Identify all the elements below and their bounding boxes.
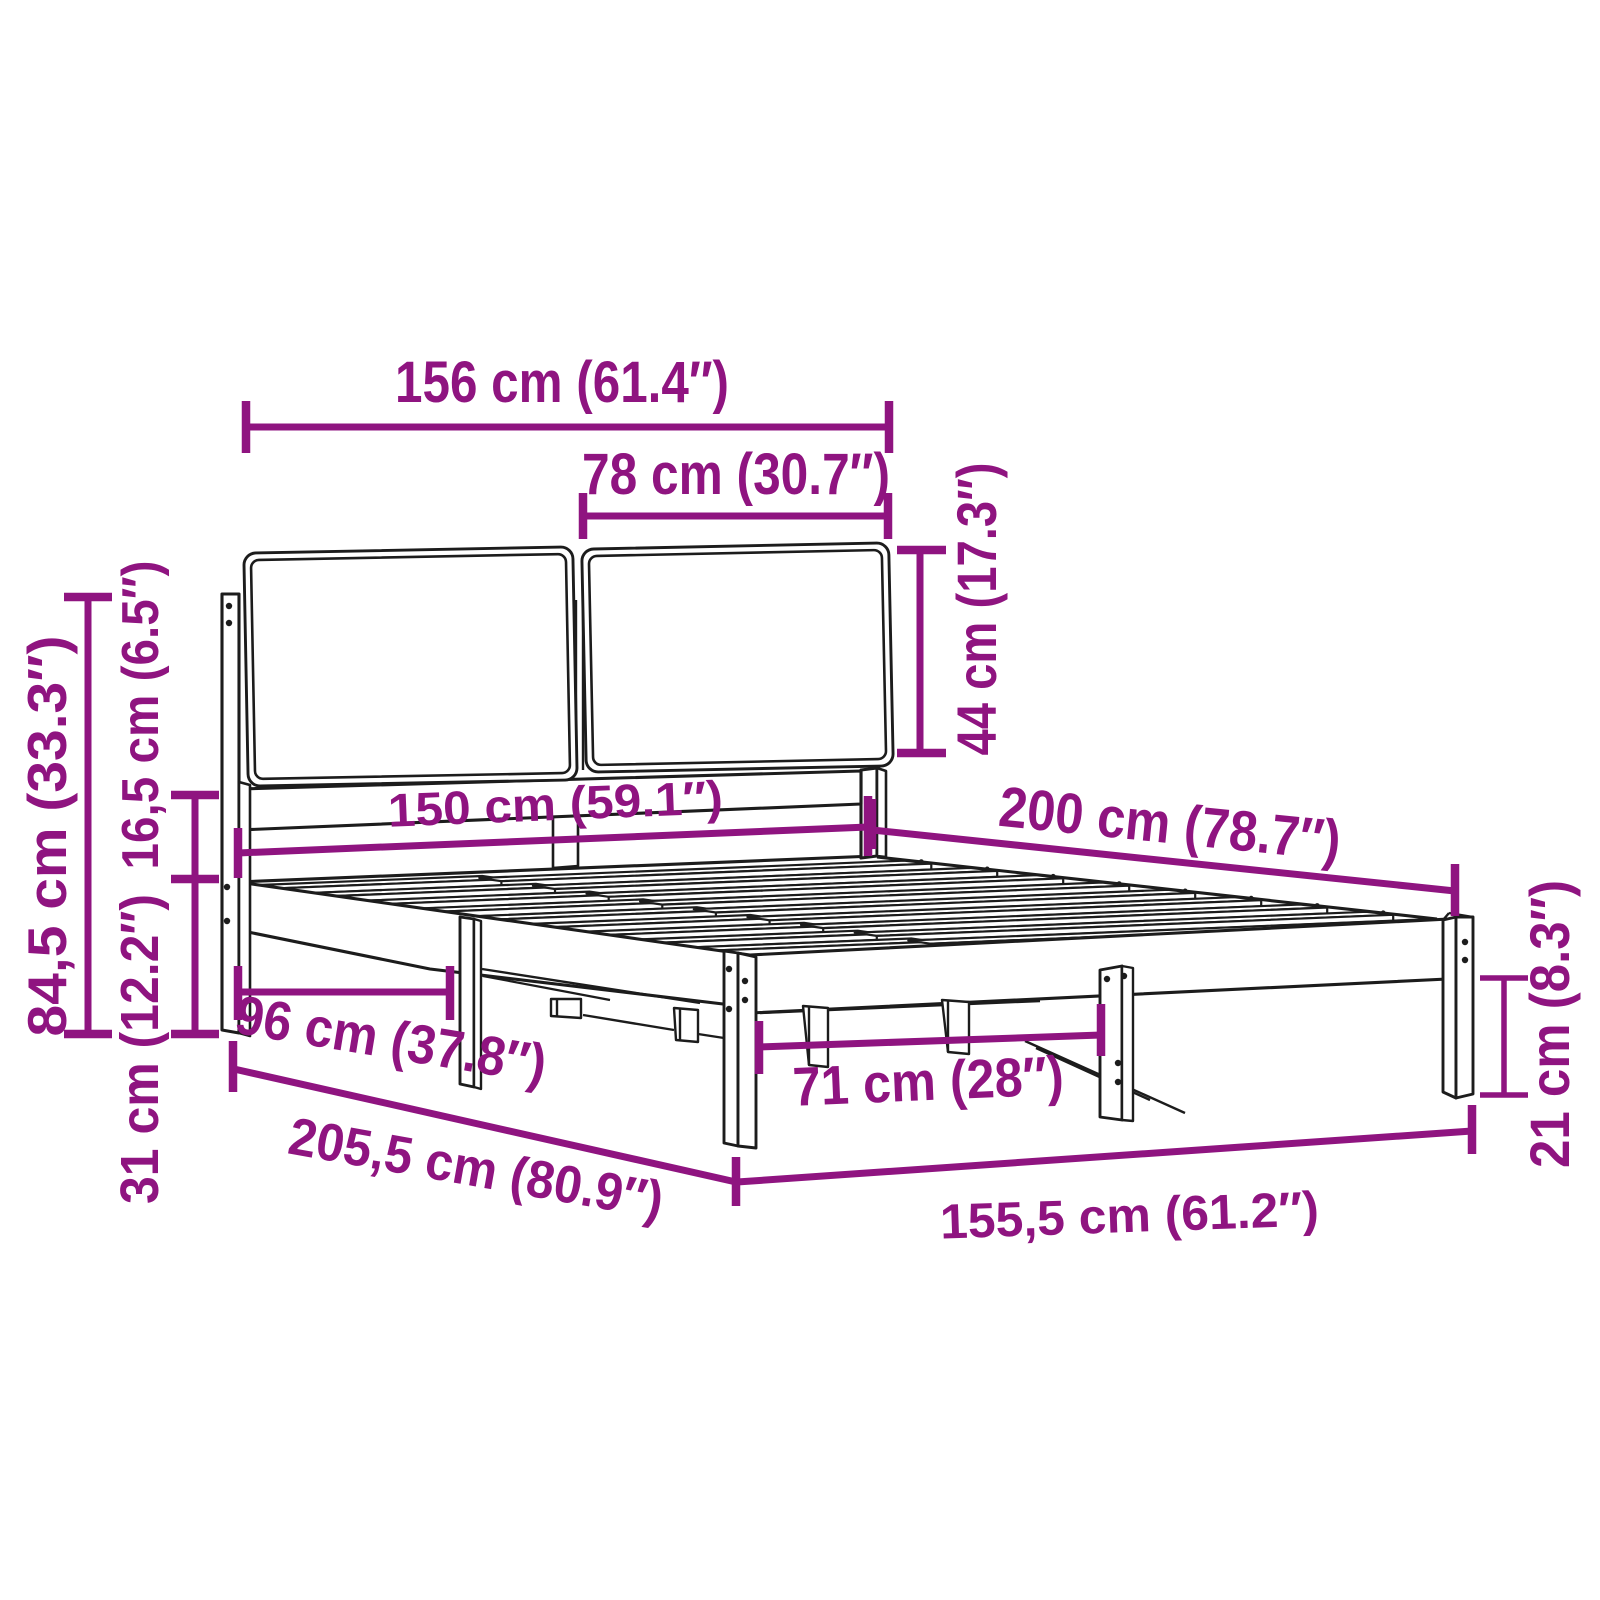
svg-text:156 cm (61.4″): 156 cm (61.4″) (395, 350, 729, 415)
svg-text:44 cm (17.3″): 44 cm (17.3″) (945, 463, 1008, 756)
svg-text:21 cm (8.3″): 21 cm (8.3″) (1518, 880, 1581, 1168)
svg-text:16,5 cm (6.5″): 16,5 cm (6.5″) (112, 561, 170, 870)
svg-text:84,5 cm (33.3″): 84,5 cm (33.3″) (16, 636, 78, 1037)
svg-text:78 cm (30.7″): 78 cm (30.7″) (582, 442, 890, 507)
svg-text:71 cm (28″): 71 cm (28″) (791, 1044, 1064, 1118)
svg-text:31 cm (12.2″): 31 cm (12.2″) (110, 894, 170, 1204)
